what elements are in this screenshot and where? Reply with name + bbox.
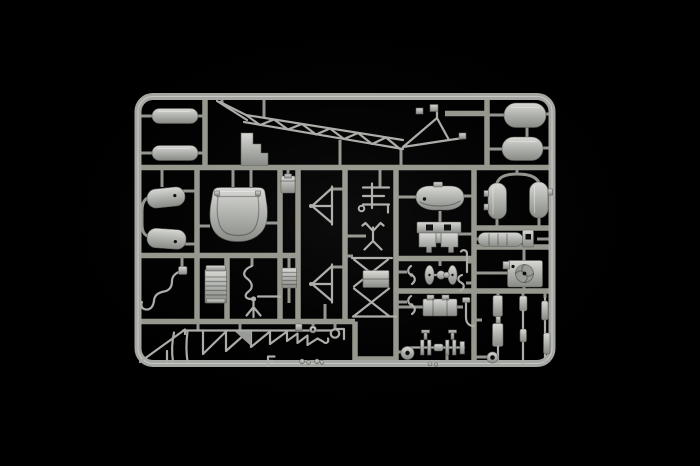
sprue-photo: sprue runner grid and gate stubs — [0, 0, 700, 466]
photo-stage: sprue runner grid and gate stubs — [0, 0, 700, 466]
vignette-overlay — [0, 0, 700, 466]
